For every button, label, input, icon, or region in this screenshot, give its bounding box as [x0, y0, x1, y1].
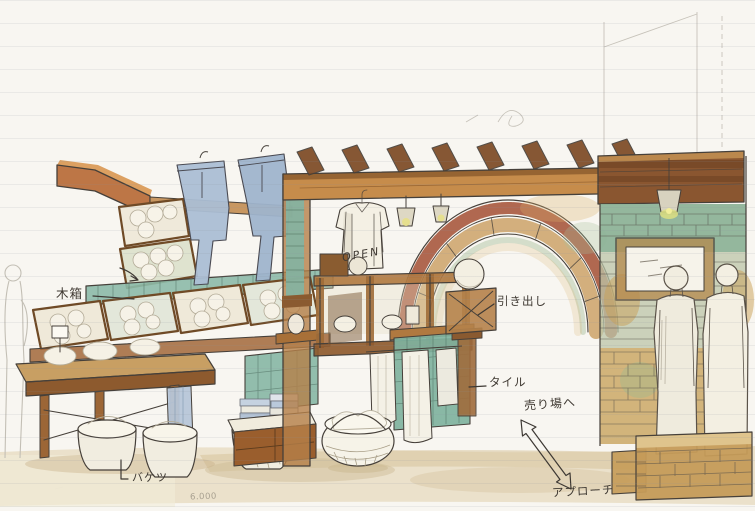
annotation-tile: タイル [489, 377, 527, 389]
sketch-page: 木箱 OPEN 引き出し タイル 売り場へ バケツ アプローチ 6.000 [0, 0, 755, 511]
pendant-lamp [397, 194, 449, 226]
annotation-dimension: 6.000 [190, 493, 217, 502]
annotation-bucket: バケツ [132, 472, 168, 483]
annotation-wooden-box: 木箱 [56, 288, 83, 301]
person-sketch [5, 265, 27, 458]
annotation-to-sales-floor: 売り場へ [524, 396, 577, 412]
window-frame [616, 238, 714, 300]
annotation-drawer: 引き出し [497, 296, 547, 308]
